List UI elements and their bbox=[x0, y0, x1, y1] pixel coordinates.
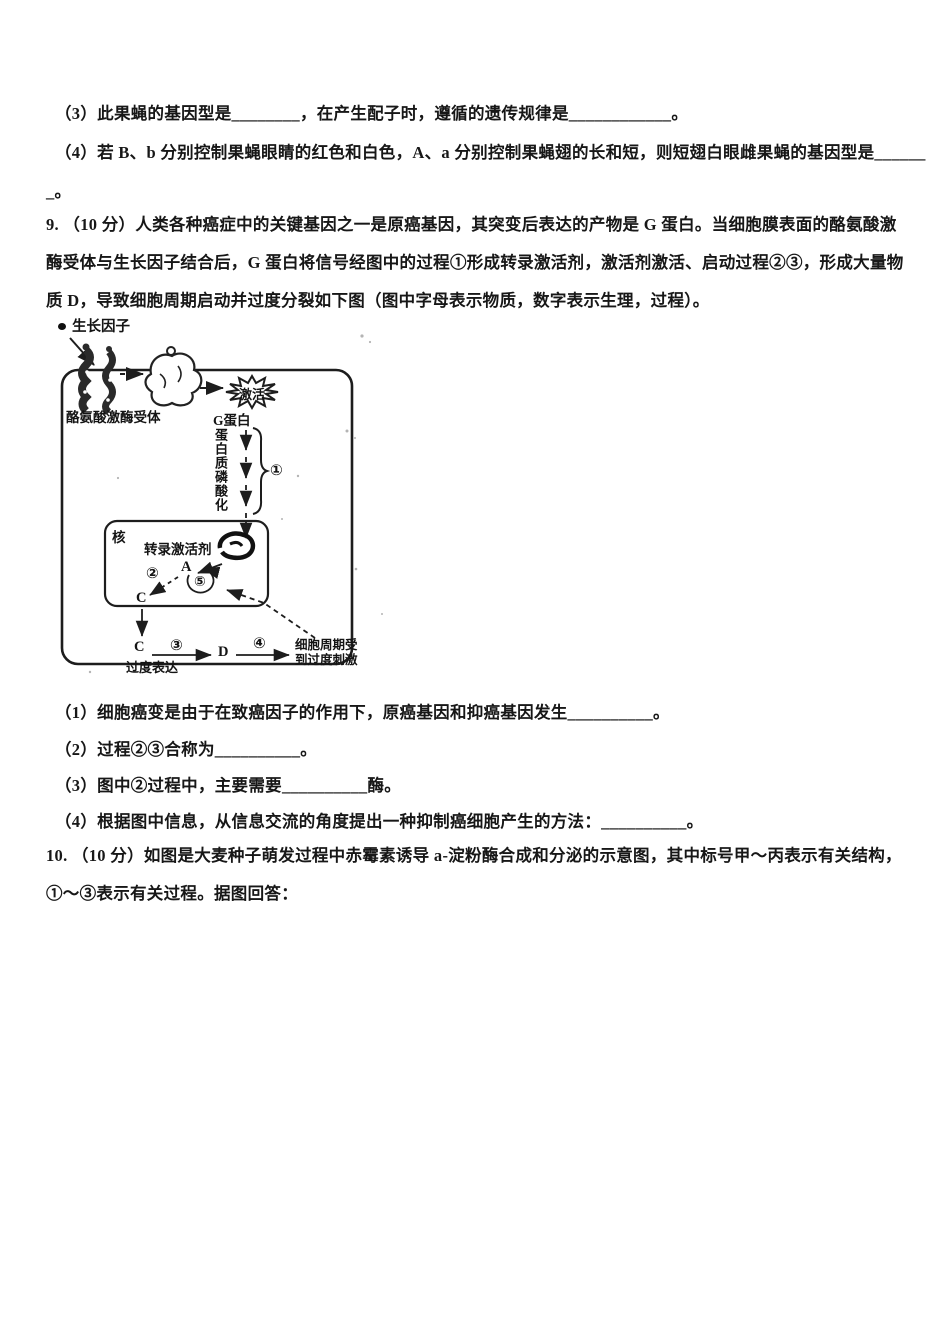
nucleus-label: 核 bbox=[112, 526, 126, 546]
q10-stem-line-1: 10. （10 分）如图是大麦种子萌发过程中赤霉素诱导 a-淀粉酶合成和分泌的示… bbox=[46, 842, 902, 866]
substance-c-cytoplasm-label: C bbox=[134, 639, 144, 656]
cell-cycle-result-label: 细胞周期受 到过度刺激 bbox=[295, 638, 358, 668]
substance-d-label: D bbox=[218, 644, 228, 661]
cell-cycle-result-line-2: 到过度刺激 bbox=[295, 653, 358, 668]
q9-stem-line-3: 质 D，导致细胞周期启动并过度分裂如下图（图中字母表示物质，数字表示生理，过程）… bbox=[46, 287, 710, 311]
cell-cycle-result-line-1: 细胞周期受 bbox=[295, 638, 358, 653]
growth-factor-dot-icon bbox=[58, 323, 66, 330]
activated-label: 激活 bbox=[239, 384, 265, 403]
q9-stem-line-2: 酶受体与生长因子结合后，G 蛋白将信号经图中的过程①形成转录激活剂，激活剂激活、… bbox=[46, 249, 904, 273]
dimer-receptor-icon bbox=[146, 347, 202, 405]
step5-label: ⑤ bbox=[194, 574, 206, 590]
q9-sub1-line: （1）细胞癌变是由于在致癌因子的作用下，原癌基因和抑癌基因发生_________… bbox=[55, 699, 670, 723]
feedback-dashed-arrow bbox=[227, 590, 315, 638]
growth-factor-label: 生长因子 bbox=[72, 315, 130, 336]
transcription-activator-label: 转录激活剂 bbox=[144, 538, 212, 558]
g-protein-label: G蛋白 bbox=[213, 409, 251, 429]
q10-stem-line-2: ①～③表示有关过程。据图回答： bbox=[46, 880, 298, 904]
receptor-icon bbox=[82, 344, 113, 413]
step3-label: ③ bbox=[170, 636, 183, 654]
overexpression-label: 过度表达 bbox=[126, 657, 178, 676]
substance-c-nucleus-label: C bbox=[136, 590, 146, 607]
step4-label: ④ bbox=[253, 634, 266, 652]
transcription-activator-icon bbox=[220, 533, 253, 557]
q8-sub4-line: （4）若 B、b 分别控制果蝇眼睛的红色和白色，A、a 分别控制果蝇翅的长和短，… bbox=[55, 139, 926, 163]
signalling-pathway-figure: 生长因子 酪氨酸激酶受体 激活 G蛋白 蛋白质磷酸化 ① 核 转录激活剂 A ②… bbox=[50, 314, 450, 694]
phosphorylation-label: 蛋白质磷酸化 bbox=[211, 428, 230, 520]
step2-label: ② bbox=[146, 564, 159, 582]
q9-sub4-line: （4）根据图中信息，从信息交流的角度提出一种抑制癌细胞产生的方法：_______… bbox=[55, 808, 703, 832]
substance-a-label: A bbox=[181, 559, 191, 576]
receptor-label: 酪氨酸激酶受体 bbox=[66, 406, 161, 426]
q9-sub3-line: （3）图中②过程中，主要需要__________酶。 bbox=[55, 772, 401, 796]
figure-shapes bbox=[50, 314, 450, 694]
q8-sub4-continuation: _。 bbox=[46, 178, 71, 202]
q8-sub3-line: （3）此果蝇的基因型是________，在产生配子时，遵循的遗传规律是_____… bbox=[55, 100, 688, 124]
q9-sub2-line: （2）过程②③合称为__________。 bbox=[55, 736, 317, 760]
step1-label: ① bbox=[270, 461, 283, 479]
q9-stem-line-1: 9. （10 分）人类各种癌症中的关键基因之一是原癌基因，其突变后表达的产物是 … bbox=[46, 211, 897, 235]
brace-step1 bbox=[253, 428, 267, 514]
